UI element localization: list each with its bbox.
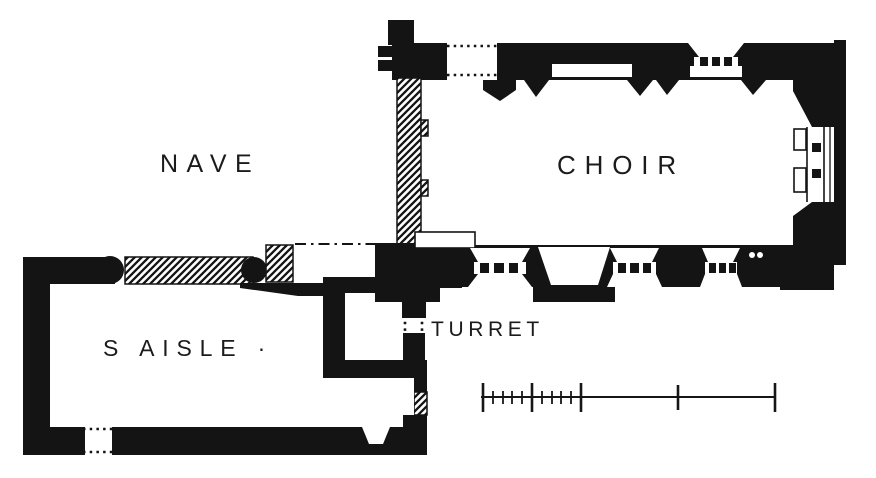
mullion-block	[729, 263, 736, 273]
choir-south-wall-east-end	[780, 245, 834, 290]
aisle-east-door-jamb-hatched	[414, 392, 427, 415]
choir-west-tooth-2	[378, 60, 394, 71]
choir-ne-corner	[793, 80, 840, 127]
s-door-projection	[533, 285, 615, 302]
floor-plan-figure: NAVE CHOIR S AISLE · TURRET	[0, 0, 876, 478]
choir-nw-buttress	[388, 20, 414, 45]
mullion-block	[643, 263, 651, 273]
aisle-west-wall	[23, 257, 50, 455]
s-window1-outer-splay	[468, 274, 532, 287]
scale-bar	[481, 383, 776, 412]
choir-west-wall-hatched	[397, 78, 421, 245]
north-window-sill	[690, 66, 742, 77]
label-choir: CHOIR	[557, 150, 685, 180]
turret-east-wall-upper	[403, 293, 425, 318]
respond	[741, 80, 766, 95]
east-window-reveal	[794, 168, 806, 192]
s-window3-outer-splay	[700, 274, 742, 287]
west-wall-jog	[421, 120, 428, 136]
mullion-block	[630, 263, 639, 273]
turret-east-wall-lower	[403, 333, 425, 360]
arcade-pillar-west	[96, 256, 124, 284]
mullion-block	[712, 57, 720, 66]
turret-south-wall	[323, 360, 427, 378]
east-window-mullion-dot	[812, 169, 821, 178]
arcade-pier-hatched	[266, 245, 293, 282]
s-window2-outer-splay	[607, 274, 662, 287]
mullion-block	[494, 263, 504, 273]
mullion-block	[480, 263, 489, 273]
aisle-sw-corner	[23, 427, 85, 455]
floor-plan-svg: NAVE CHOIR S AISLE · TURRET	[0, 0, 876, 478]
respond	[524, 80, 549, 97]
choir-north-wall-d	[748, 43, 840, 80]
respond	[656, 80, 679, 95]
respond	[627, 80, 653, 96]
choir-west-tooth-1	[378, 46, 394, 57]
turret-walls	[323, 277, 430, 378]
arcade-pillar-east	[241, 257, 267, 283]
label-turret: TURRET	[431, 318, 544, 341]
choir-bench	[415, 232, 475, 248]
west-wall-jog	[421, 180, 428, 196]
north-window-recess	[552, 64, 632, 77]
aisle-east-door-gap	[403, 380, 414, 415]
east-window-reveal	[794, 129, 806, 150]
mullion-block	[719, 263, 726, 273]
respond-wide	[483, 80, 516, 101]
arcade-wall-hatched	[125, 257, 253, 284]
piscina-circle	[749, 252, 755, 258]
east-window-mullion-dot	[812, 143, 821, 152]
piscina-circle	[757, 252, 763, 258]
s-window2-splay	[610, 248, 659, 262]
aisle-east-wall-top	[414, 378, 427, 392]
s-window1-splay	[470, 248, 530, 262]
label-s-aisle: S AISLE ·	[103, 335, 273, 361]
mullion-block	[700, 57, 708, 66]
mullion-block	[618, 263, 626, 273]
mullion-block	[709, 263, 716, 273]
mullion-block	[509, 263, 518, 273]
choir-north-wall-a	[392, 43, 447, 80]
aisle-se-corner	[403, 415, 427, 455]
mullion-block	[724, 57, 732, 66]
label-nave: NAVE	[160, 150, 260, 178]
